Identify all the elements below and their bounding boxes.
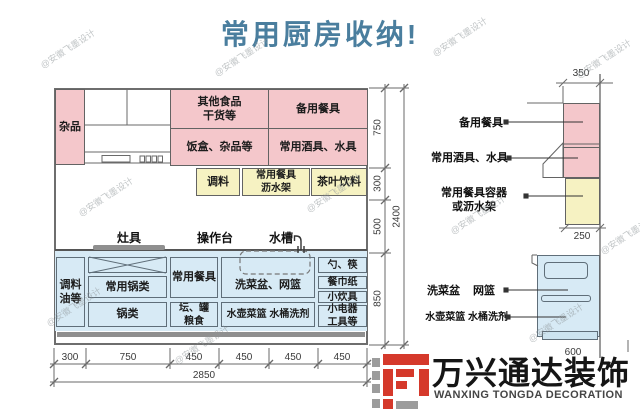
- sideview-counter-lip: [532, 255, 538, 266]
- logo-name: 万兴通达装饰: [432, 348, 630, 394]
- sideview-dim-350: [556, 79, 613, 103]
- kitchen-storage-infographic: { "title": "常用厨房收纳!", "watermark": { "te…: [0, 0, 640, 412]
- company-logo: 万兴通达装饰 WANXING TONGDA DECORATION: [368, 346, 640, 412]
- sideview-shelf-lines: [564, 144, 599, 148]
- leader-lines: [504, 120, 583, 319]
- logo-mark-icon: [372, 352, 429, 409]
- logo-subtitle: WANXING TONGDA DECORATION: [434, 389, 623, 401]
- sideview-dim-250: [559, 224, 606, 232]
- sideview-cabinet-slope: [543, 143, 563, 178]
